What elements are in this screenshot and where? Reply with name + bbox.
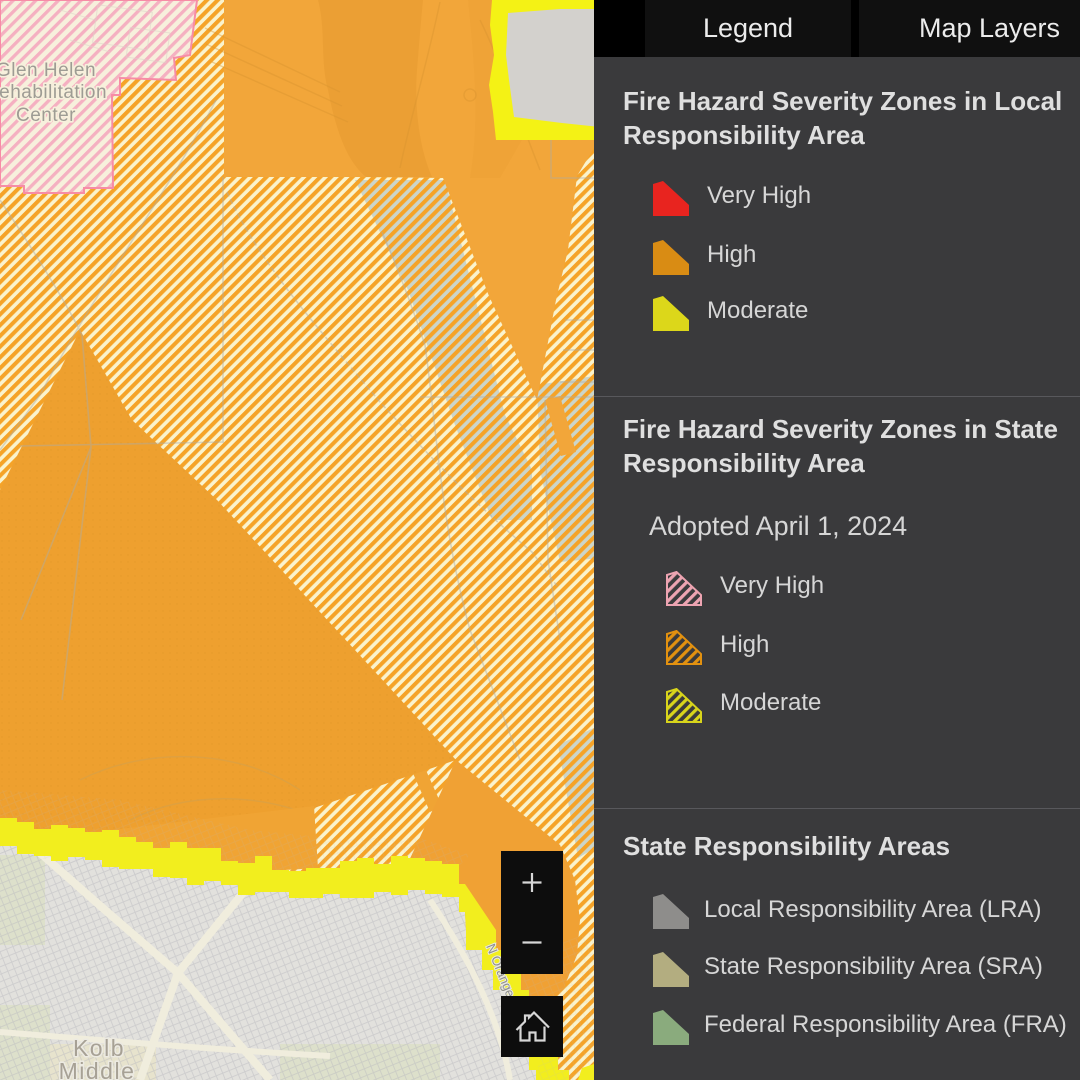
svg-text:Glen Helen: Glen Helen bbox=[0, 60, 96, 81]
svg-text:Center: Center bbox=[16, 105, 76, 126]
svg-text:Rehabilitation: Rehabilitation bbox=[0, 82, 107, 103]
svg-text:Middle: Middle bbox=[59, 1058, 136, 1080]
